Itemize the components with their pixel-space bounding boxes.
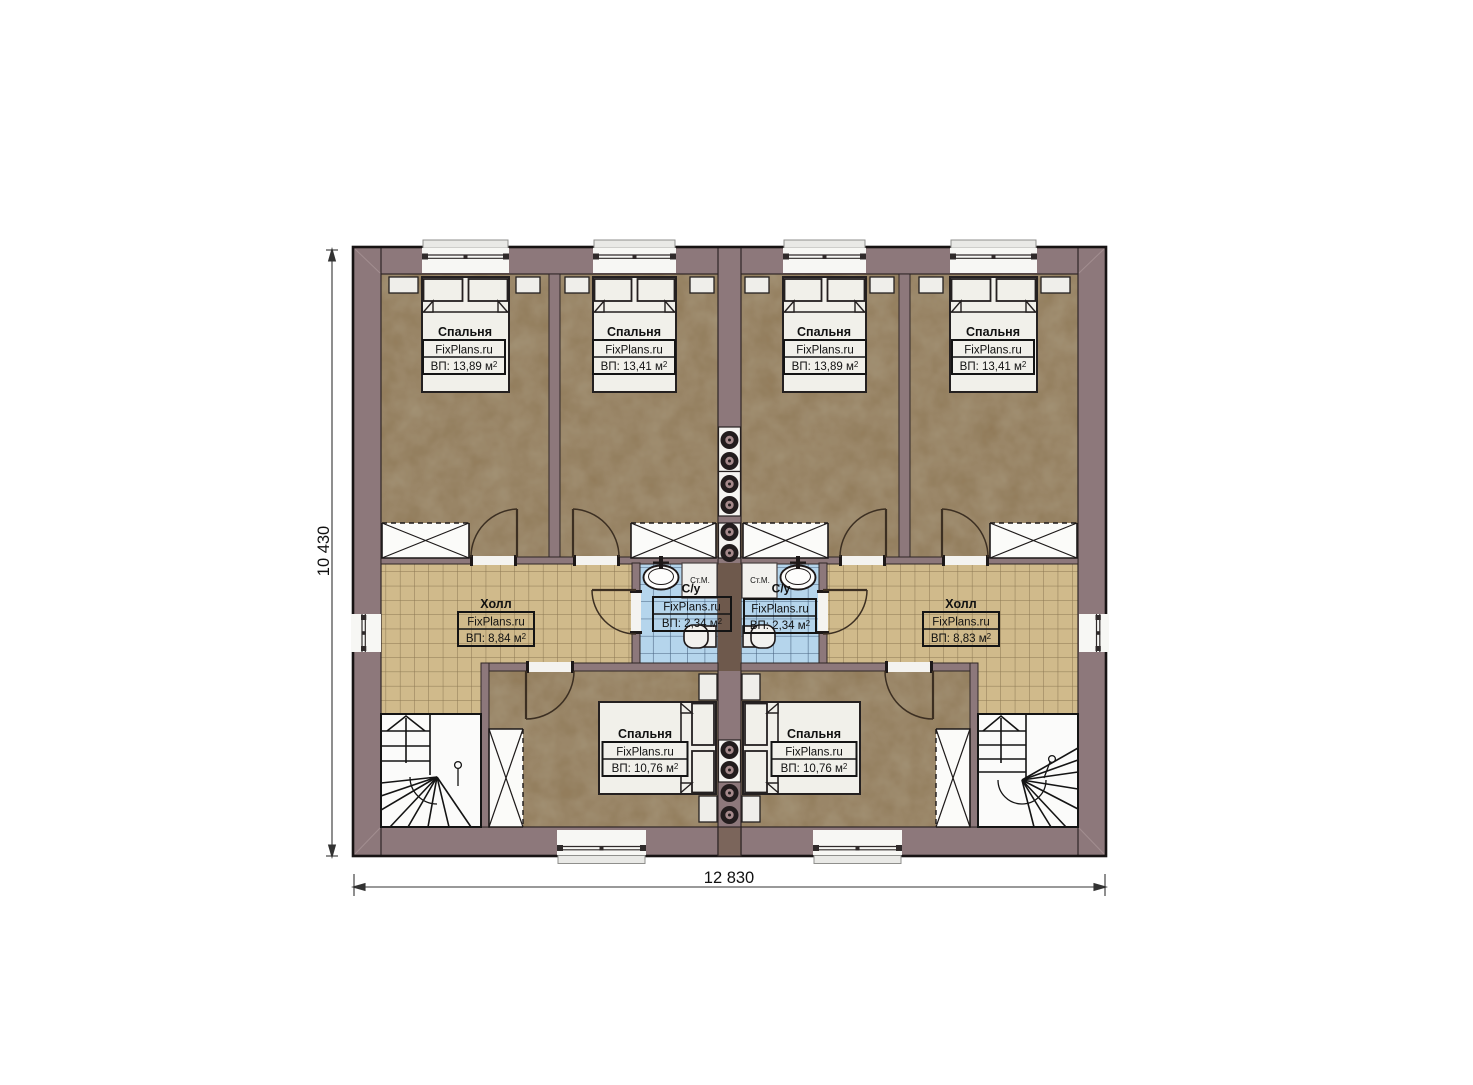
svg-text:Холл: Холл xyxy=(480,597,511,611)
svg-text:ВП: 13,41 м2: ВП: 13,41 м2 xyxy=(960,360,1027,373)
svg-text:FixPlans.ru: FixPlans.ru xyxy=(796,345,854,357)
svg-text:ВП: 8,84 м2: ВП: 8,84 м2 xyxy=(466,632,527,645)
svg-text:ВП: 13,89 м2: ВП: 13,89 м2 xyxy=(431,360,498,373)
svg-text:FixPlans.ru: FixPlans.ru xyxy=(663,602,721,614)
svg-text:12 830: 12 830 xyxy=(704,869,754,887)
svg-text:ВП: 2,34 м2: ВП: 2,34 м2 xyxy=(750,619,811,632)
svg-text:ВП: 8,83 м2: ВП: 8,83 м2 xyxy=(931,632,992,645)
svg-text:ВП: 2,34 м2: ВП: 2,34 м2 xyxy=(662,617,723,630)
svg-text:10 430: 10 430 xyxy=(315,526,333,576)
svg-text:FixPlans.ru: FixPlans.ru xyxy=(435,345,493,357)
svg-text:FixPlans.ru: FixPlans.ru xyxy=(964,345,1022,357)
svg-text:Спальня: Спальня xyxy=(438,325,492,339)
svg-text:Холл: Холл xyxy=(945,597,976,611)
svg-text:FixPlans.ru: FixPlans.ru xyxy=(605,345,663,357)
svg-text:ВП: 13,89 м2: ВП: 13,89 м2 xyxy=(792,360,859,373)
svg-text:Спальня: Спальня xyxy=(787,727,841,741)
svg-text:FixPlans.ru: FixPlans.ru xyxy=(932,617,990,629)
svg-text:ВП: 10,76 м2: ВП: 10,76 м2 xyxy=(612,762,679,775)
svg-text:Спальня: Спальня xyxy=(797,325,851,339)
svg-text:Спальня: Спальня xyxy=(607,325,661,339)
svg-text:FixPlans.ru: FixPlans.ru xyxy=(467,617,525,629)
svg-text:С/у: С/у xyxy=(682,582,701,596)
svg-text:ВП: 10,76 м2: ВП: 10,76 м2 xyxy=(781,762,848,775)
svg-text:FixPlans.ru: FixPlans.ru xyxy=(616,747,674,759)
svg-text:FixPlans.ru: FixPlans.ru xyxy=(785,747,843,759)
svg-text:ВП: 13,41 м2: ВП: 13,41 м2 xyxy=(601,360,668,373)
svg-text:Спальня: Спальня xyxy=(618,727,672,741)
svg-text:С/у: С/у xyxy=(772,582,791,596)
svg-text:Ст.М.: Ст.М. xyxy=(750,576,770,585)
svg-text:FixPlans.ru: FixPlans.ru xyxy=(751,604,809,616)
svg-text:Спальня: Спальня xyxy=(966,325,1020,339)
